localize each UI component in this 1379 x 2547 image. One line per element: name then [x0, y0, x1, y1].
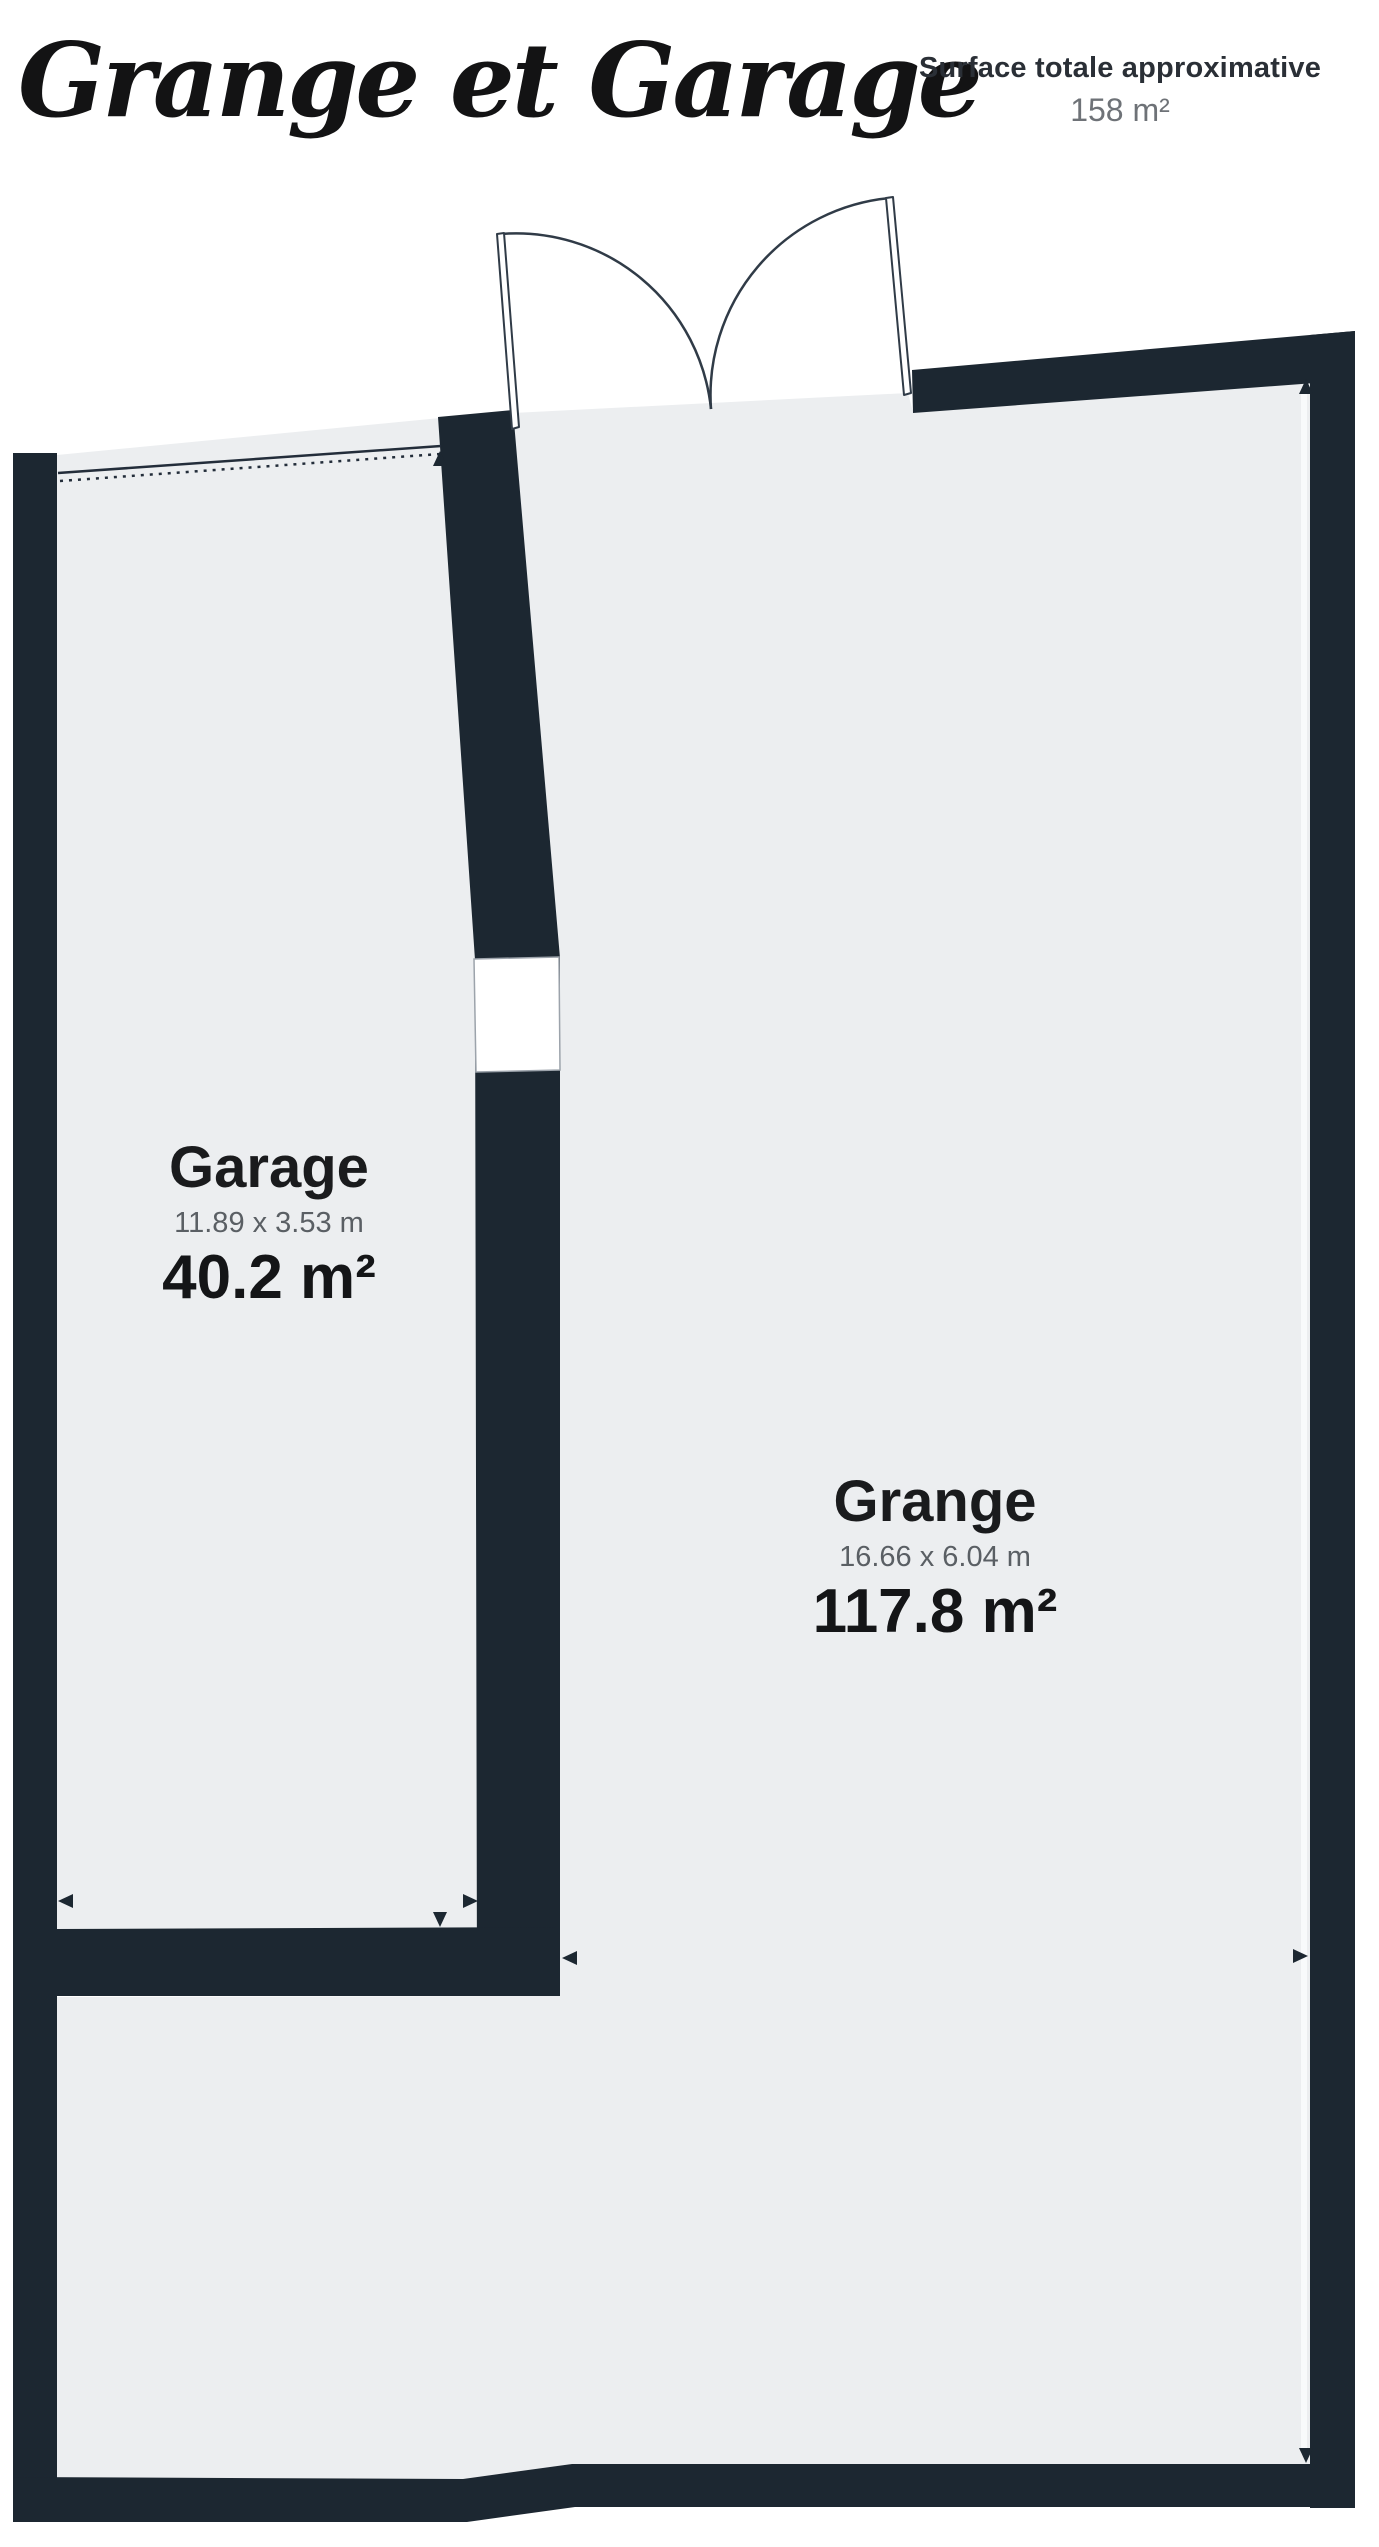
- floorplan-page: Grange et Garage Surface totale approxim…: [0, 0, 1379, 2547]
- middle-wall-opening: [474, 957, 560, 1072]
- door-leaf-left: [497, 233, 519, 429]
- total-surface-label: Surface totale approximative: [870, 52, 1370, 84]
- wall-left: [13, 453, 57, 2521]
- room-name-garage: Garage: [162, 1136, 376, 1200]
- room-dimensions-garage: 11.89 x 3.53 m: [162, 1206, 376, 1240]
- door-arc-right: [711, 198, 890, 409]
- room-area-garage: 40.2 m²: [162, 1244, 376, 1312]
- total-surface-block: Surface totale approximative 158 m²: [870, 52, 1370, 128]
- room-label-garage: Garage 11.89 x 3.53 m 40.2 m²: [162, 1136, 376, 1312]
- room-dimensions-grange: 16.66 x 6.04 m: [813, 1540, 1058, 1574]
- door-leaf-right: [886, 197, 911, 395]
- page-title: Grange et Garage: [18, 0, 858, 176]
- total-surface-value: 158 m²: [870, 92, 1370, 128]
- wall-garage-bottom: [57, 1927, 560, 1996]
- room-name-grange: Grange: [813, 1470, 1058, 1534]
- door-arc-left: [500, 233, 711, 409]
- wall-right: [1310, 331, 1355, 2508]
- room-label-grange: Grange 16.66 x 6.04 m 117.8 m²: [813, 1470, 1058, 1646]
- room-area-grange: 117.8 m²: [813, 1578, 1058, 1646]
